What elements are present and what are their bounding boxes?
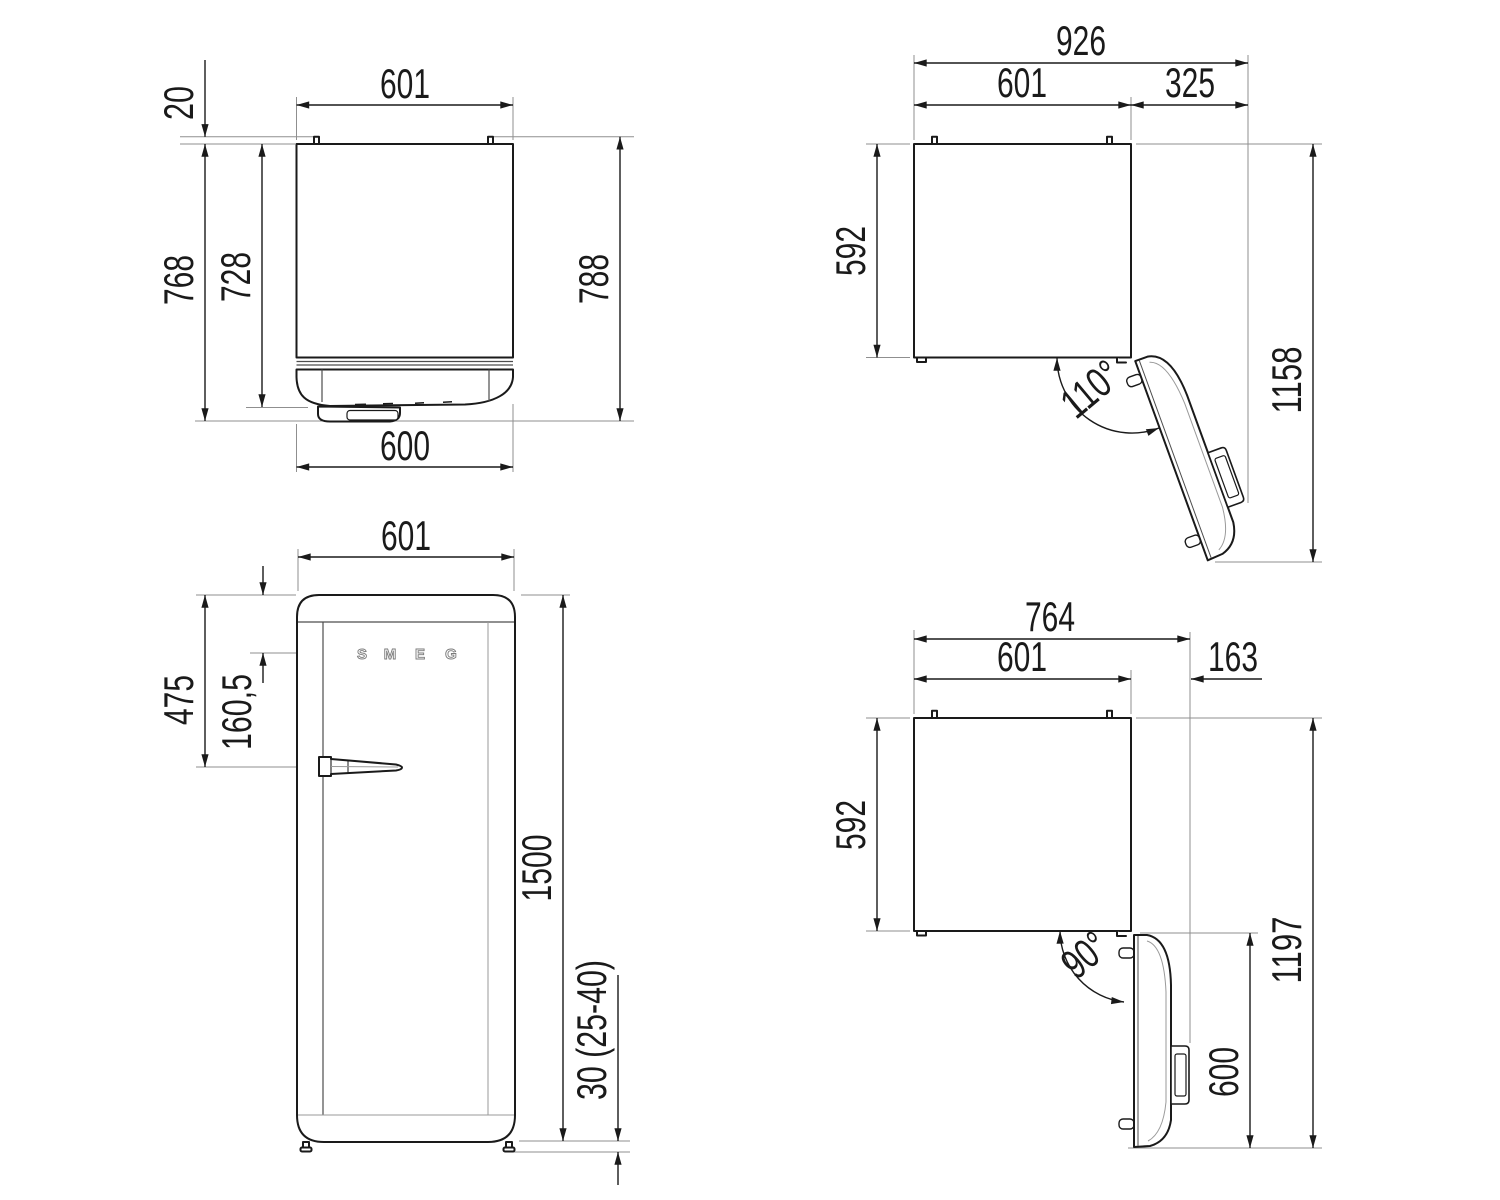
dim-side-clearance: 325	[1165, 59, 1215, 106]
dim-depth-with-door: 768	[155, 255, 202, 305]
feet	[301, 1142, 515, 1152]
dim-total-depth-open: 1158	[1263, 347, 1310, 414]
fridge-body-plan	[914, 711, 1131, 936]
dim-body-width: 601	[997, 59, 1047, 106]
dim-side-clearance: 163	[1208, 633, 1258, 680]
cabinet-outline	[914, 144, 1131, 358]
door-closed-outline	[297, 370, 514, 407]
view-plan-door-open-90: 90° 764 601 163 592 1197 600	[827, 593, 1322, 1148]
dim-hinge-pin: 20	[155, 86, 202, 120]
fridge-front: S M E G	[297, 595, 515, 1152]
foot-mark	[917, 358, 926, 363]
dim-body-width: 601	[381, 512, 431, 559]
foot-mark	[917, 931, 926, 936]
hinge-pin-right	[1107, 711, 1112, 718]
dim-door-width: 600	[380, 422, 430, 469]
dim-body-depth: 592	[827, 800, 874, 850]
view-front: S M E G 601 475	[155, 512, 630, 1185]
hinge-pin-left	[314, 137, 319, 144]
dimension-drawing: 601 20 768 728 788 600	[0, 0, 1500, 1200]
handle-plan-inner	[347, 411, 398, 421]
logo-letter-m: M	[384, 646, 397, 663]
fridge-outline	[297, 595, 515, 1142]
dim-height: 1500	[513, 835, 560, 902]
dim-total-width: 926	[1056, 17, 1106, 64]
dim-door-width-open: 600	[1200, 1047, 1247, 1097]
logo-letter-e: E	[415, 646, 425, 663]
dim-handle-offset: 475	[155, 675, 202, 725]
hinge-pin-right	[1107, 137, 1112, 144]
hinge-pin-right	[488, 137, 493, 144]
cabinet-outline	[297, 144, 514, 358]
view-plan-door-open-110: 110° 926 601 325 592 1158	[827, 17, 1322, 565]
logo-letter-s: S	[357, 646, 367, 663]
fridge-body-plan	[914, 137, 1131, 363]
fridge-body-plan	[297, 137, 514, 422]
open-door-90	[1119, 935, 1189, 1147]
hinge-pin-left	[932, 137, 937, 144]
dim-body-depth: 592	[827, 226, 874, 276]
dim-depth-to-door-face: 728	[212, 252, 259, 302]
dim-logo-offset: 160,5	[213, 674, 260, 750]
swing-angle: 90°	[1052, 922, 1124, 1002]
dim-body-width: 601	[997, 633, 1047, 680]
dim-feet-height: 30 (25-40)	[568, 960, 615, 1100]
hinge-pin-left	[932, 711, 937, 718]
view-plan-door-closed: 601 20 768 728 788 600	[155, 60, 634, 472]
dim-width-top: 601	[380, 60, 430, 107]
dim-total-depth-open: 1197	[1263, 917, 1310, 984]
dim-depth-total: 788	[570, 254, 617, 304]
logo-letter-g: G	[445, 646, 457, 663]
open-door-110	[1121, 342, 1259, 565]
technical-drawing-sheet: 601 20 768 728 788 600	[0, 0, 1500, 1200]
cabinet-outline	[914, 718, 1131, 931]
